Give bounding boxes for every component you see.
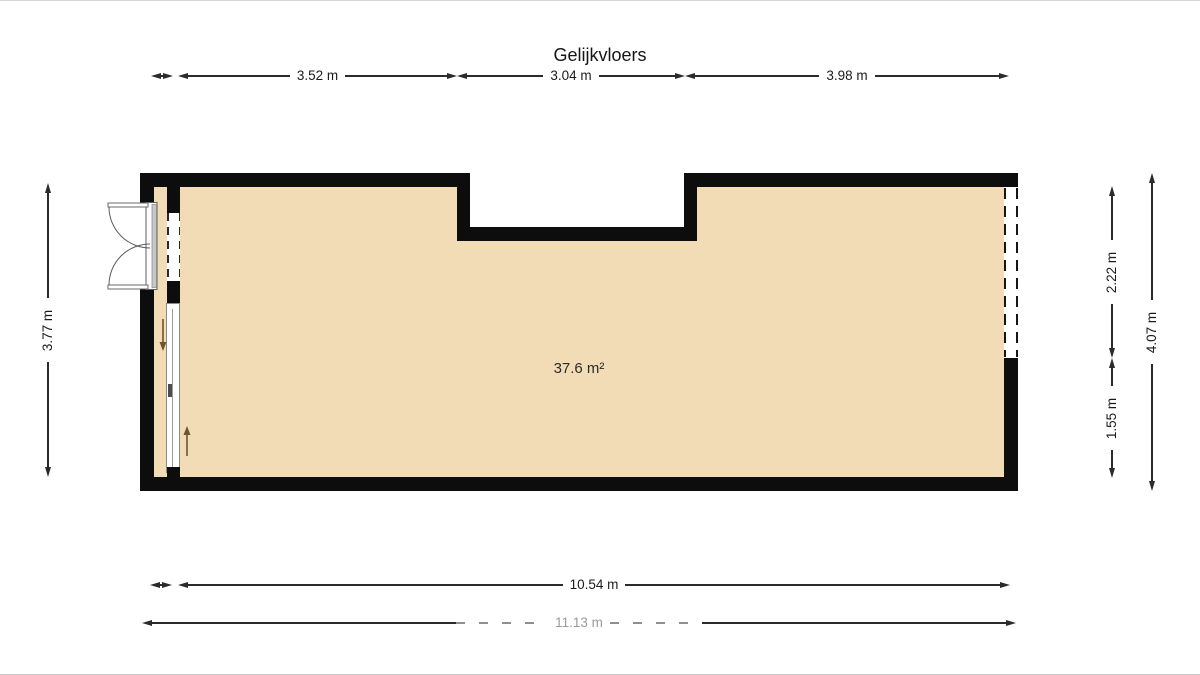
door-leaf-top	[108, 203, 148, 207]
arrow-down-icon	[1109, 468, 1115, 478]
partition-opening-dash-left	[167, 213, 169, 281]
dim-label: 3.04 m	[543, 69, 598, 83]
arrow-up-icon	[1149, 173, 1155, 183]
wall-left-above-door	[140, 173, 154, 203]
arrow-right-icon	[1006, 620, 1016, 626]
arrow-right-icon	[162, 582, 172, 588]
arrow-down-icon	[1149, 481, 1155, 491]
window-dash-inner	[1004, 188, 1006, 357]
dim-bottom-wall-thickness	[150, 578, 172, 592]
arrow-right-icon	[447, 73, 457, 79]
partition-bottom-stub	[167, 467, 180, 477]
sliding-door-handle	[168, 384, 172, 397]
dim-label: 3.77 m	[41, 309, 56, 350]
dim-label: 1.55 m	[1105, 397, 1120, 438]
arrow-right-icon	[675, 73, 685, 79]
arrow-left-icon	[178, 582, 188, 588]
dim-top-middle: 3.04 m	[457, 69, 685, 83]
arrow-up-icon	[45, 183, 51, 193]
sliding-door-panel	[172, 309, 173, 467]
dim-top-left: 3.52 m	[178, 69, 457, 83]
room-area-label: 37.6 m²	[499, 360, 659, 377]
dim-bottom-outer: 11.13 m	[142, 616, 1016, 630]
arrow-left-icon	[178, 73, 188, 79]
dim-label: 11.13 m	[548, 616, 610, 630]
page-title: Gelijkvloers	[450, 45, 750, 66]
wall-top-left	[140, 173, 470, 187]
dim-label: 4.07 m	[1145, 311, 1160, 352]
arrow-up-icon	[1109, 186, 1115, 196]
wall-top-right	[684, 173, 1018, 187]
wall-bottom	[140, 477, 1018, 491]
arrow-left-icon	[150, 582, 160, 588]
arrow-right-icon	[163, 73, 173, 79]
arrow-right-icon	[999, 73, 1009, 79]
arrow-left-icon	[151, 73, 161, 79]
dim-label: 3.98 m	[819, 69, 874, 83]
wall-right-lower	[1004, 358, 1018, 491]
dim-top-wall-thickness	[151, 69, 173, 83]
arrow-right-icon	[1000, 582, 1010, 588]
dim-left-total: 3.77 m	[40, 183, 56, 477]
dim-top-right: 3.98 m	[685, 69, 1009, 83]
partition-opening-dash-right	[179, 213, 181, 281]
window-dash-outer	[1016, 188, 1018, 357]
floorplan-page: Gelijkvloers 37.6 m²	[0, 0, 1200, 675]
dim-right-upper: 2.22 m	[1104, 186, 1120, 358]
notch-void	[470, 187, 684, 228]
dim-right-lower: 1.55 m	[1104, 358, 1120, 478]
arrow-down-icon	[45, 467, 51, 477]
arrow-left-icon	[142, 620, 152, 626]
wall-notch-bottom	[457, 227, 697, 241]
arrow-left-icon	[457, 73, 467, 79]
wall-left-below-door	[140, 289, 154, 491]
dim-label: 10.54 m	[563, 578, 626, 592]
arrow-down-icon	[1109, 348, 1115, 358]
partition-mid	[167, 281, 180, 303]
dim-bottom-inner: 10.54 m	[178, 578, 1010, 592]
dim-label: 3.52 m	[290, 69, 345, 83]
partition-top	[167, 187, 180, 213]
arrow-up-icon	[1109, 358, 1115, 368]
door-swing-arc-top	[109, 207, 150, 248]
door-swing-arc-bottom	[109, 244, 150, 285]
dim-right-total: 4.07 m	[1144, 173, 1160, 491]
dim-label: 2.22 m	[1105, 251, 1120, 292]
arrow-left-icon	[685, 73, 695, 79]
